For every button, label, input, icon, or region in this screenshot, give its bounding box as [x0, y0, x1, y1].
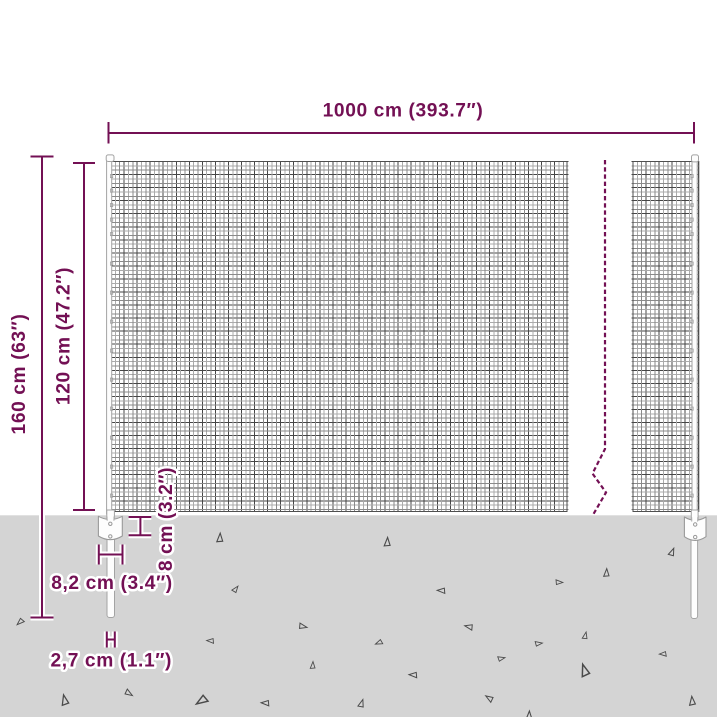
- svg-text:8,2 cm (3.4″): 8,2 cm (3.4″): [51, 573, 173, 594]
- svg-text:2,7 cm (1.1″): 2,7 cm (1.1″): [51, 651, 173, 672]
- svg-text:1000 cm (393.7″): 1000 cm (393.7″): [323, 101, 484, 122]
- svg-text:160 cm (63″): 160 cm (63″): [9, 314, 30, 435]
- svg-text:8 cm (3.2″): 8 cm (3.2″): [156, 467, 177, 571]
- svg-text:120 cm (47.2″): 120 cm (47.2″): [54, 267, 75, 405]
